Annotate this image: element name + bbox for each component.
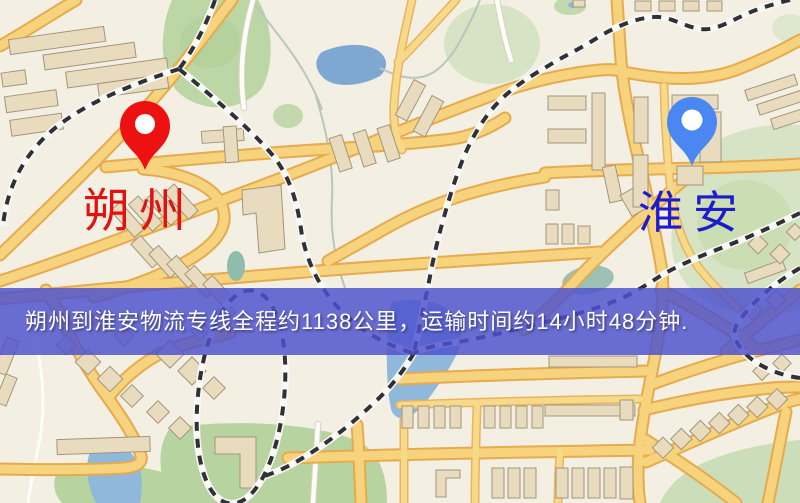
pond: [227, 251, 245, 281]
destination-pin-hole: [682, 110, 703, 131]
map-image: 朔州 淮安 朔州到淮安物流专线全程约1138公里，运输时间约14小时48分钟.: [0, 0, 800, 503]
route-info-banner: 朔州到淮安物流专线全程约1138公里，运输时间约14小时48分钟.: [0, 288, 800, 355]
origin-pin-hole: [135, 114, 155, 134]
route-info-text: 朔州到淮安物流专线全程约1138公里，运输时间约14小时48分钟.: [0, 288, 800, 355]
basemap: [0, 0, 800, 503]
